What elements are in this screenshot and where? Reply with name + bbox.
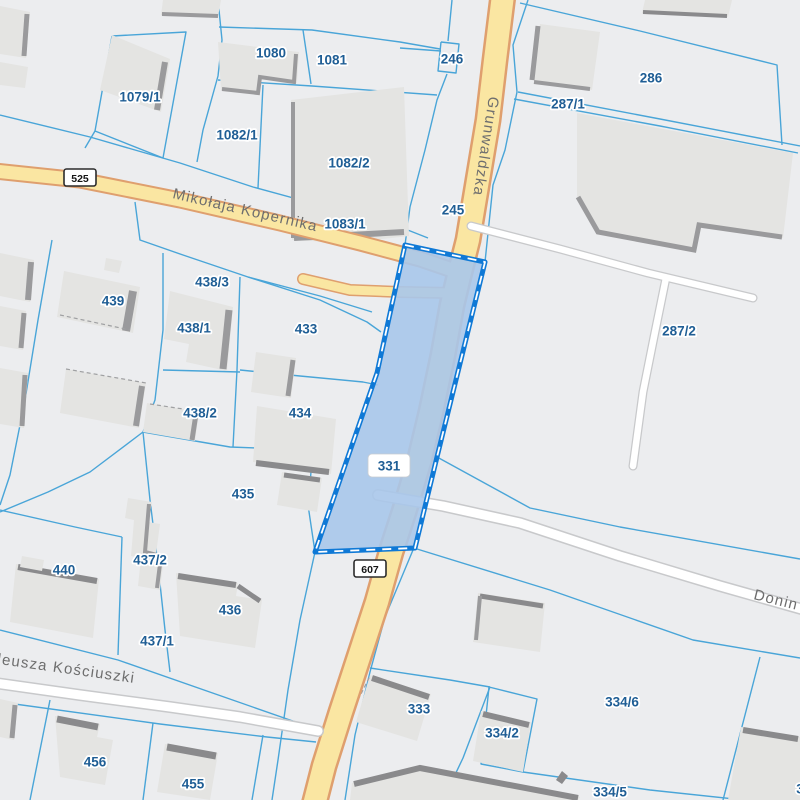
parcel-label-1082-1: 1082/1: [216, 128, 258, 143]
parcel-label-437-2: 437/2: [133, 553, 167, 568]
road-badge-label-607: 607: [361, 564, 379, 576]
parcel-label-334-6: 334/6: [605, 695, 639, 710]
parcel-label-1082-2: 1082/2: [328, 156, 369, 171]
parcel-label-439: 439: [102, 294, 125, 309]
map-canvas[interactable]: Mikołaja KopernikaGrunwaldzkadeusza Kośc…: [0, 0, 800, 800]
parcel-label-1080: 1080: [256, 46, 286, 61]
parcel-label-438-2: 438/2: [183, 406, 217, 421]
parcel-label-1079-1: 1079/1: [119, 90, 161, 105]
parcel-label-1083-1: 1083/1: [324, 217, 366, 232]
parcel-label-438-3: 438/3: [195, 275, 229, 290]
building-shadow: [24, 14, 27, 56]
parcel-label-286: 286: [640, 71, 663, 86]
building-shadow: [22, 375, 25, 426]
parcel-label-437-1: 437/1: [140, 634, 174, 649]
parcel-label-1081: 1081: [317, 53, 348, 68]
building-shadow: [28, 262, 31, 300]
parcel-label-287-2: 287/2: [662, 324, 696, 339]
building-shadow: [21, 313, 24, 348]
parcel-label-287-1: 287/1: [551, 97, 585, 112]
building-shadow: [162, 14, 218, 16]
parcel-label-334-2: 334/2: [485, 726, 519, 741]
cadastral-map[interactable]: Mikołaja KopernikaGrunwaldzkadeusza Kośc…: [0, 0, 800, 800]
parcel-label-440: 440: [53, 563, 76, 578]
parcel-label-438-1: 438/1: [177, 321, 211, 336]
parcel-label-333: 333: [408, 702, 431, 717]
parcel-label-435: 435: [232, 487, 255, 502]
parcel-label-455: 455: [182, 777, 205, 792]
parcel-label-436: 436: [219, 603, 242, 618]
road-badge-label-525: 525: [71, 173, 89, 185]
parcel-label-3: 3: [796, 782, 800, 797]
parcel-label-245: 245: [442, 203, 465, 218]
selected-parcel-label: 331: [378, 459, 401, 474]
parcel-label-334-5: 334/5: [593, 785, 627, 800]
building-shadow: [12, 705, 15, 738]
parcel-label-246: 246: [441, 52, 464, 67]
building: [534, 24, 600, 90]
parcel-label-433: 433: [295, 322, 318, 337]
parcel-label-434: 434: [289, 406, 312, 421]
parcel-label-456: 456: [84, 755, 107, 770]
